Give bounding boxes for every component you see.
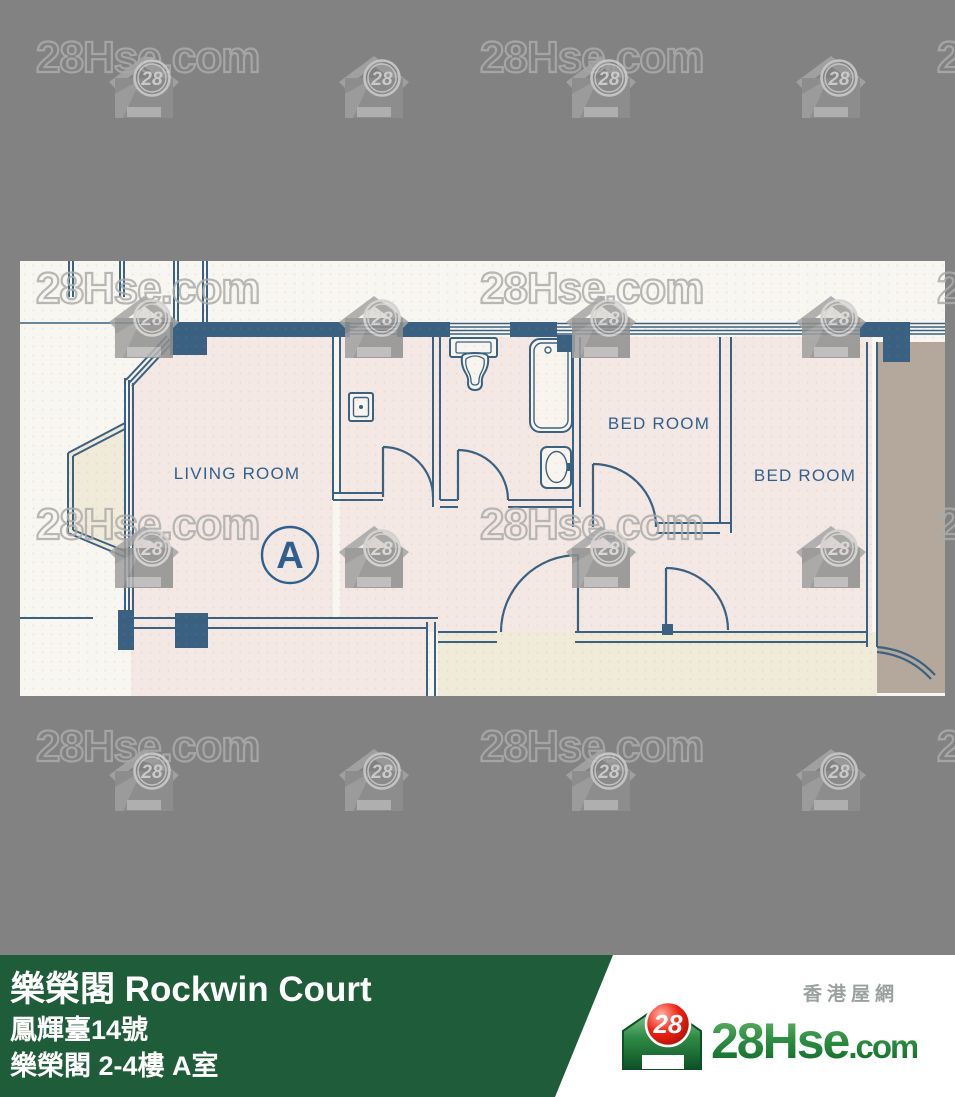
watermark-house-icon: 28 [792, 52, 870, 131]
svg-text:28: 28 [140, 69, 163, 90]
watermark-house-icon: 28 [335, 745, 413, 824]
watermark-text: 28Hse.com [480, 33, 703, 83]
logo-brand: 28Hse [711, 1012, 848, 1070]
site-name-chinese: 香港屋網 [803, 979, 899, 1006]
kitchen-sink [349, 393, 373, 421]
watermark-house-icon: 28 [562, 745, 640, 824]
bathtub [530, 339, 572, 432]
watermark-text: 28Hse.com [937, 722, 955, 772]
svg-text:28: 28 [827, 69, 850, 90]
svg-text:28: 28 [140, 762, 163, 783]
bedroom1-label: BED ROOM [608, 414, 710, 433]
estate-address: 鳳輝臺14號 [10, 1008, 148, 1047]
neighbor-area [877, 342, 945, 693]
estate-unit: 樂榮閣 2-4樓 A室 [10, 1044, 219, 1083]
watermark-house-icon: 28 [335, 52, 413, 131]
svg-text:28: 28 [370, 762, 393, 783]
svg-text:28: 28 [370, 69, 393, 90]
watermark-house-icon: 28 [105, 52, 183, 131]
floorplan-image: LIVING ROOM BED ROOM BED ROOM A [20, 261, 945, 696]
unit-letter: A [276, 535, 303, 577]
svg-text:28: 28 [827, 762, 850, 783]
screenshot-canvas: LIVING ROOM BED ROOM BED ROOM A 28Hse.co… [0, 0, 955, 1097]
watermark-house-icon: 28 [105, 745, 183, 824]
watermark-text: 28Hse.com [480, 722, 703, 772]
estate-title: 樂榮閣 Rockwin Court [10, 961, 372, 1012]
28hse-logo-text: 28Hse .com [711, 1012, 917, 1070]
watermark-text: 28Hse.com [36, 722, 259, 772]
svg-text:28: 28 [597, 69, 620, 90]
floorplan-drawing: LIVING ROOM BED ROOM BED ROOM A [20, 261, 945, 696]
watermark-text: 28Hse.com [937, 33, 955, 83]
logo-tld: .com [848, 1028, 917, 1066]
watermark-text: 28Hse.com [36, 33, 259, 83]
watermark-house-icon: 28 [792, 745, 870, 824]
28hse-logo-icon: 28 [616, 999, 712, 1075]
bedroom2-label: BED ROOM [754, 466, 856, 485]
logo-badge-number: 28 [653, 1009, 683, 1039]
watermark-house-icon: 28 [562, 52, 640, 131]
living-room-label: LIVING ROOM [174, 464, 301, 483]
window-lines [20, 323, 945, 334]
svg-text:28: 28 [597, 762, 620, 783]
wash-basin [541, 447, 572, 488]
